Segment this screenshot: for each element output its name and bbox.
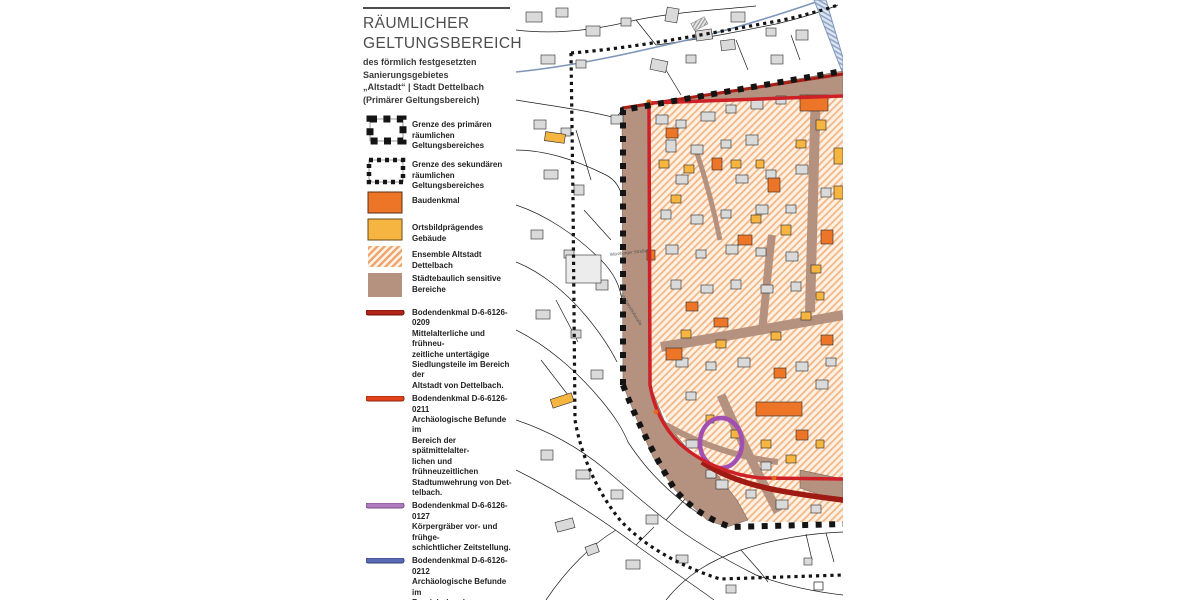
bodendenkmal-list: Bodendenkmal D-6-6126-0209 Mittelalterli… bbox=[363, 308, 513, 600]
bodendenkmal-description: Körpergräber vor- und frühge- schichtlic… bbox=[412, 522, 513, 553]
sensitive-swatch bbox=[363, 272, 410, 299]
page-title: RÄUMLICHER GELTUNGSBEREICH bbox=[363, 14, 522, 54]
legend-item-ensemble: Ensemble Altstadt Dettelbach bbox=[363, 245, 513, 271]
ortsbild-swatch bbox=[363, 218, 410, 242]
legend-item-bodendenkmal-0211: Bodendenkmal D-6-6126-0211 Archäologisch… bbox=[363, 394, 513, 498]
legend-item-primary-boundary: Grenze des primären räumlichen Geltungsb… bbox=[363, 112, 513, 150]
city-map: Würzburger Straße Alte Bahnhofstraße bbox=[516, 0, 843, 600]
legend-label: Städtebaulich sensitive Bereiche bbox=[412, 274, 501, 295]
bodendenkmal-code: Bodendenkmal D-6-6126-0211 bbox=[412, 394, 513, 415]
legend-label: Baudenkmal bbox=[412, 196, 460, 207]
legend-item-bodendenkmal-0212: Bodendenkmal D-6-6126-0212 Archäologisch… bbox=[363, 556, 513, 600]
bodendenkmal-code: Bodendenkmal D-6-6126-0127 bbox=[412, 501, 513, 522]
baudenkmal-swatch bbox=[363, 191, 410, 215]
legend-label: Ensemble Altstadt Dettelbach bbox=[412, 250, 513, 271]
bridge bbox=[691, 17, 708, 31]
legend-item-bodendenkmal-0209: Bodendenkmal D-6-6126-0209 Mittelalterli… bbox=[363, 308, 513, 391]
page-subtitle: des förmlich festgesetzten Sanierungsgeb… bbox=[363, 56, 484, 106]
legend-item-secondary-boundary: Grenze des sekundären räumlichen Geltung… bbox=[363, 154, 513, 190]
legend-item-sensitive-bereiche: Städtebaulich sensitive Bereiche bbox=[363, 272, 513, 302]
ensemble-swatch bbox=[363, 245, 410, 269]
primary-boundary-symbol bbox=[363, 112, 410, 148]
legend-label: Grenze des primären räumlichen Geltungsb… bbox=[412, 120, 513, 152]
legend-panel: RÄUMLICHER GELTUNGSBEREICH des förmlich … bbox=[363, 0, 513, 600]
legend-item-ortsbildpraegend: Ortsbildprägendes Gebäude bbox=[363, 218, 513, 244]
legend-label: Grenze des sekundären räumlichen Geltung… bbox=[412, 160, 513, 192]
legend-label: Ortsbildprägendes Gebäude bbox=[412, 223, 513, 244]
bodendenkmal-code: Bodendenkmal D-6-6126-0209 bbox=[412, 308, 513, 329]
bodendenkmal-description: Mittelalterliche und frühneu- zeitliche … bbox=[412, 329, 513, 391]
legend-item-baudenkmal: Baudenkmal bbox=[363, 191, 513, 217]
bodendenkmal-description: Archäologische Befunde im Bereich der eh… bbox=[412, 577, 513, 600]
bodendenkmal-description: Archäologische Befunde im Bereich der sp… bbox=[412, 415, 513, 498]
bodendenkmal-code: Bodendenkmal D-6-6126-0212 bbox=[412, 556, 513, 577]
title-rule bbox=[363, 7, 510, 9]
legend-item-bodendenkmal-0127: Bodendenkmal D-6-6126-0127 Körpergräber … bbox=[363, 501, 513, 553]
plan-page: RÄUMLICHER GELTUNGSBEREICH des förmlich … bbox=[0, 0, 1200, 600]
secondary-boundary-symbol bbox=[363, 154, 410, 188]
